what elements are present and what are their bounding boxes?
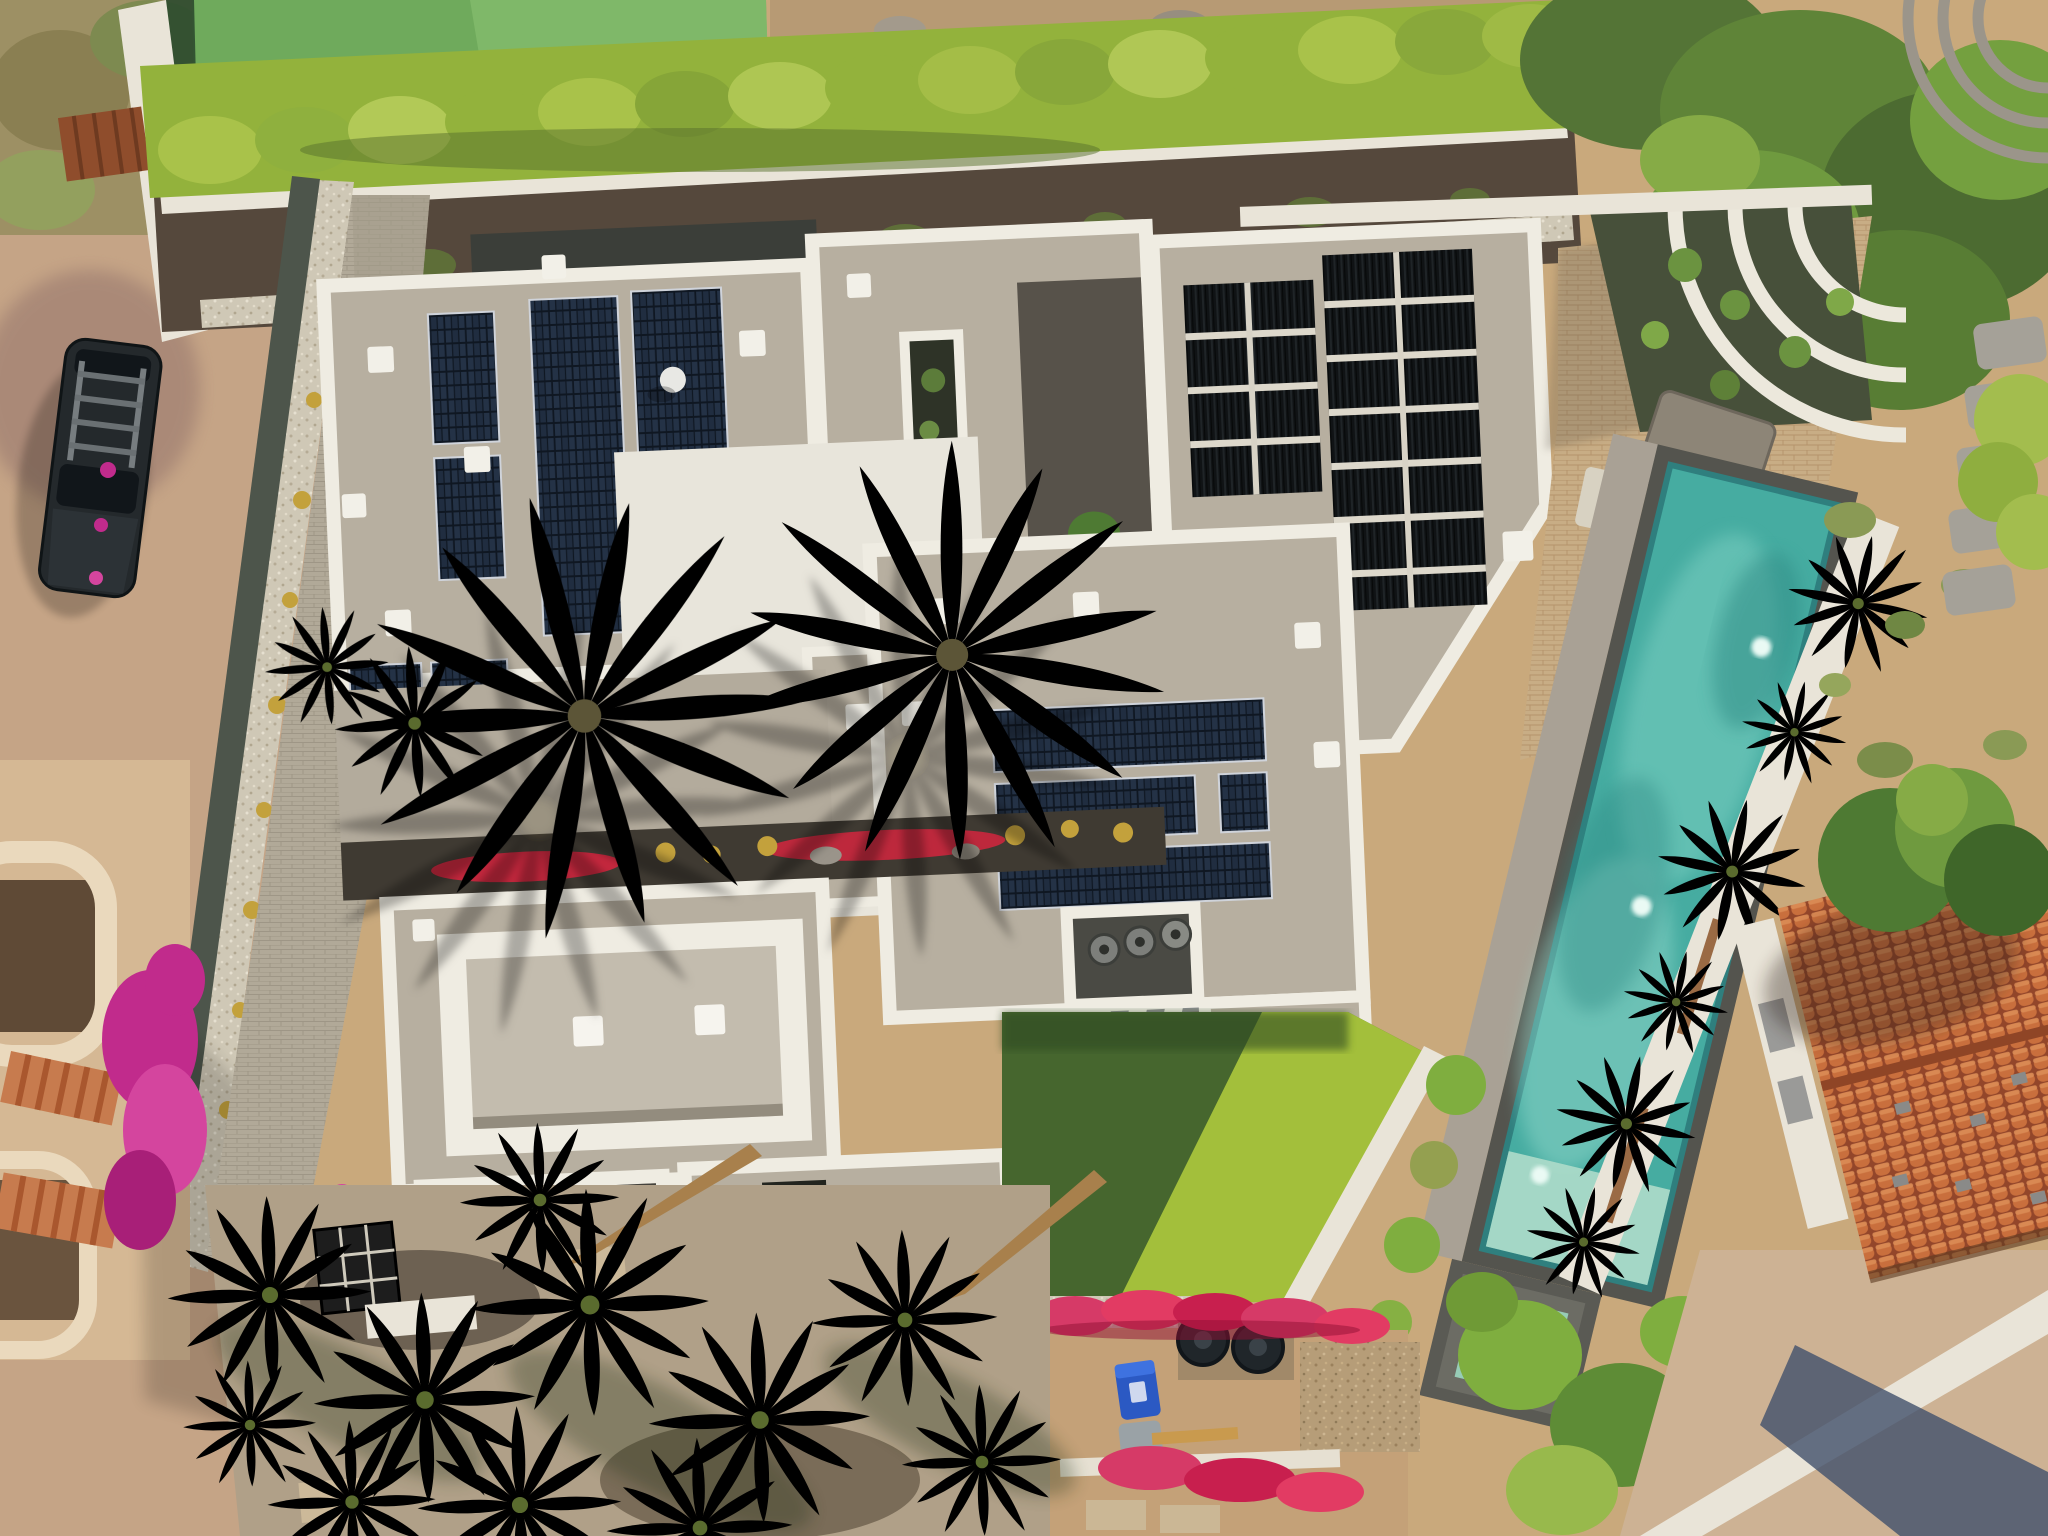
equipment-well <box>1060 901 1204 1011</box>
equipment-yard <box>1048 1315 1420 1536</box>
aerial-photo <box>0 0 2048 1536</box>
pv-panel <box>428 312 500 445</box>
roof-shadow-on-turf <box>1002 1012 1348 1050</box>
charcoal-deck <box>1017 277 1153 554</box>
pv-panel <box>1219 772 1269 832</box>
rust-gate <box>58 106 150 181</box>
recycle-bin <box>1114 1360 1161 1421</box>
black-gate <box>314 1222 400 1314</box>
aerial-photo-stage <box>0 0 2048 1536</box>
pv-panel <box>434 455 505 580</box>
